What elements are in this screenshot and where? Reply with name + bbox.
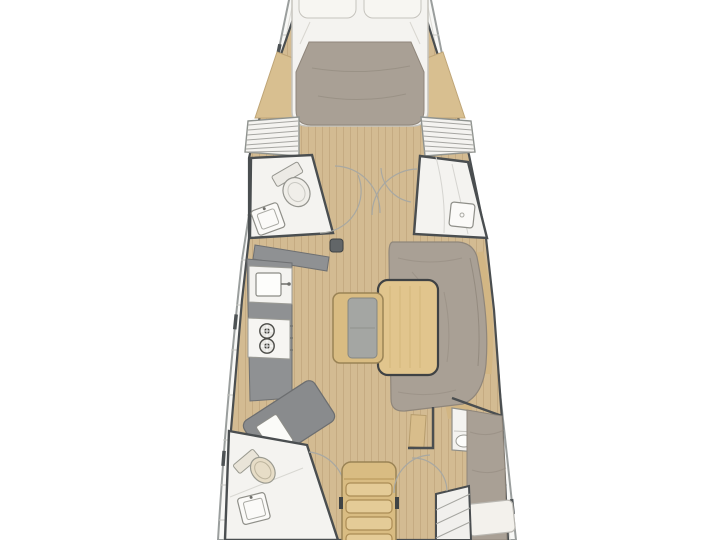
port-shelf [255, 52, 293, 118]
slatted-locker-port [245, 117, 299, 156]
galley-sink [249, 266, 292, 304]
duvet [296, 42, 424, 125]
starboard-shelf [427, 52, 465, 118]
floor-plan-canvas [0, 0, 720, 540]
slatted-locker-starboard [421, 117, 475, 156]
stove-icon [248, 318, 293, 359]
sink-icon [237, 492, 271, 525]
hatched-step-seat [436, 486, 471, 540]
sailboat-floor-plan [0, 0, 720, 540]
salon-dinette [378, 242, 490, 419]
handrail-port [339, 497, 343, 509]
companionway-stairs [339, 462, 399, 540]
pillow-port [299, 0, 356, 18]
aft-pillow [466, 500, 515, 537]
shower-sink-icon [449, 202, 475, 228]
wood-locker [409, 415, 426, 448]
handrail-starboard [395, 497, 399, 509]
center-bench [333, 293, 383, 363]
mast-post [330, 239, 343, 252]
salon-table [378, 280, 438, 375]
pillow-starboard [364, 0, 421, 18]
